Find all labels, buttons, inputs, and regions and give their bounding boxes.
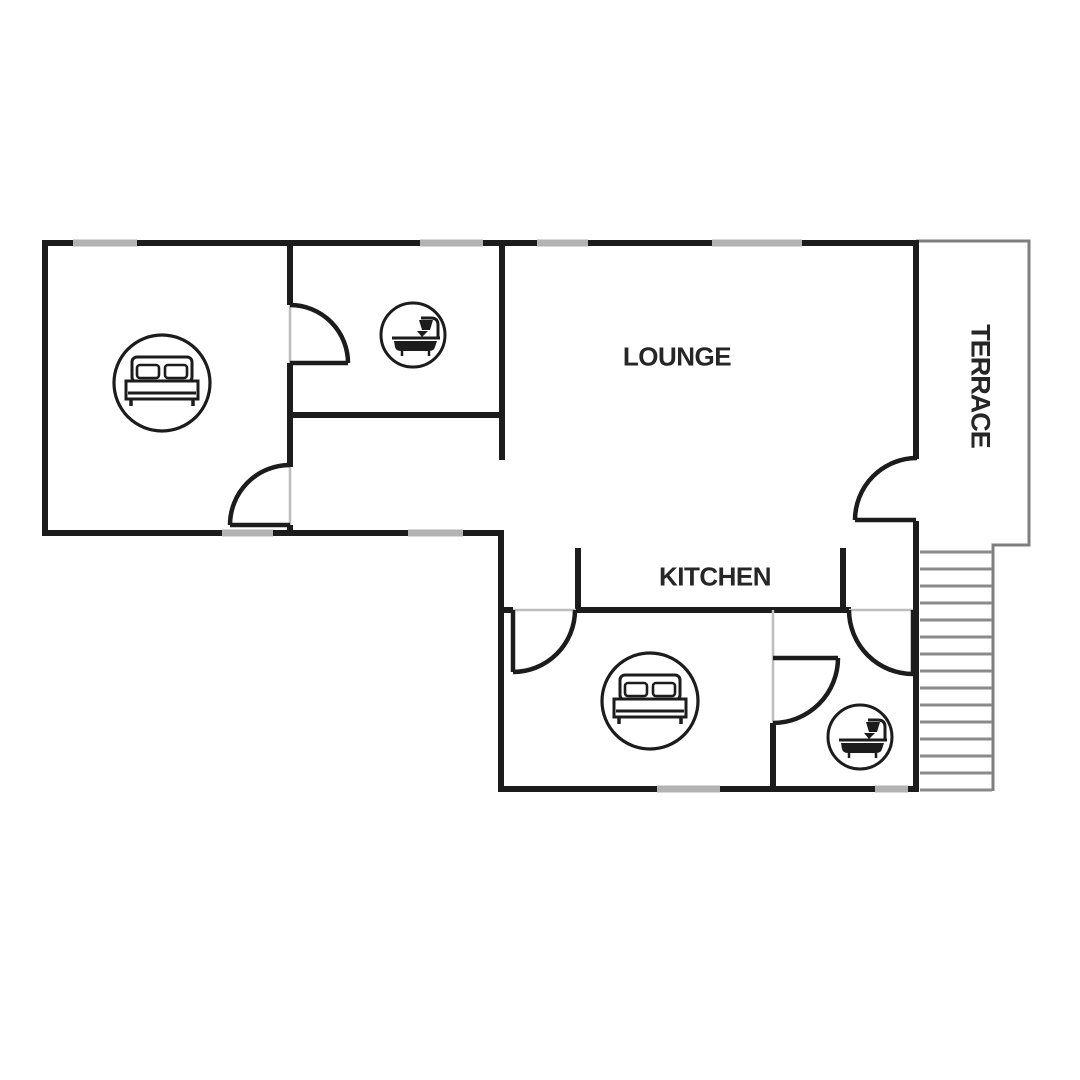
door-swings xyxy=(230,305,917,723)
floor-plan: LOUNGE KITCHEN TERRACE xyxy=(0,0,1080,1080)
double-bed-icon xyxy=(602,653,698,749)
stairs-icon xyxy=(920,552,992,790)
exterior-walls xyxy=(45,243,916,789)
door-swing-bedroom-2 xyxy=(513,610,575,672)
windows xyxy=(73,243,908,789)
floor-plan-drawing xyxy=(0,0,1080,1080)
door-swing-bedroom-1 xyxy=(230,465,290,525)
bathtub-shower-icon xyxy=(828,705,892,769)
door-swing-bathroom-1 xyxy=(290,305,348,363)
kitchen-label: KITCHEN xyxy=(659,562,771,593)
interior-walls xyxy=(287,240,851,792)
door-swing-lounge-terrace xyxy=(855,458,917,520)
lounge-label: LOUNGE xyxy=(623,342,731,373)
door-openings xyxy=(290,305,916,723)
bathtub-shower-icon xyxy=(381,303,445,367)
double-bed-icon xyxy=(114,335,210,431)
door-swing-bathroom-2-kitchen xyxy=(849,610,913,674)
terrace-label: TERRACE xyxy=(965,324,996,448)
door-swing-bathroom-2-bedroom xyxy=(773,658,838,723)
